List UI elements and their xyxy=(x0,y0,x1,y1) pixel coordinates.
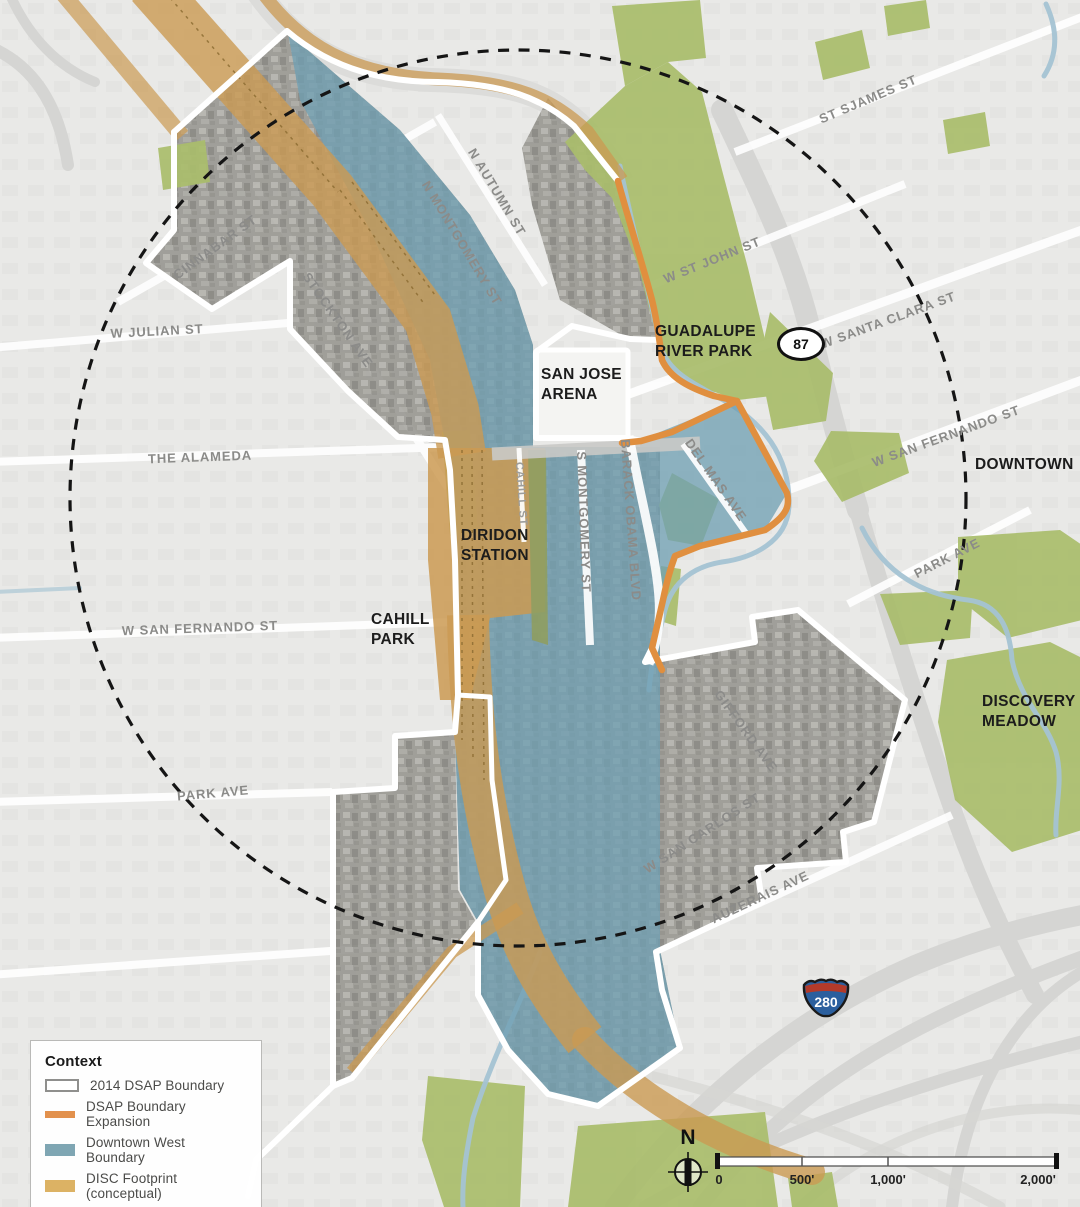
swatch-downtown-west xyxy=(45,1144,75,1156)
place-label-diridon-station: DIRIDON STATION xyxy=(461,526,529,566)
scale-tick-0: 0 xyxy=(715,1172,722,1187)
swatch-dsap-expansion xyxy=(45,1111,75,1118)
legend-label: 2014 DSAP Boundary xyxy=(90,1078,224,1093)
interstate-280-shield: 280 xyxy=(801,976,851,1022)
scale-tick-1000: 1,000' xyxy=(870,1172,906,1187)
legend-item-dsap-expansion: DSAP Boundary Expansion xyxy=(45,1099,247,1129)
legend-item-disc-footprint: DISC Footprint (conceptual) xyxy=(45,1171,247,1201)
place-label-san-jose-arena: SAN JOSE ARENA xyxy=(541,365,622,405)
place-label-downtown: DOWNTOWN xyxy=(975,455,1074,475)
place-label-guadalupe-river-park: GUADALUPE RIVER PARK xyxy=(655,322,756,362)
place-label-cahill-park: CAHILL PARK xyxy=(371,610,430,650)
place-label-discovery-meadow: DISCOVERY MEADOW xyxy=(982,692,1076,732)
legend-title: Context xyxy=(45,1053,247,1070)
north-arrow-label: N xyxy=(680,1126,695,1150)
scale-tick-500: 500' xyxy=(790,1172,815,1187)
map-canvas xyxy=(0,0,1080,1207)
legend-label: DISC Footprint (conceptual) xyxy=(86,1171,247,1201)
legend-label: DSAP Boundary Expansion xyxy=(86,1099,247,1129)
route-87-number: 87 xyxy=(793,336,809,352)
legend-label: Downtown West Boundary xyxy=(86,1135,247,1165)
interstate-280-number: 280 xyxy=(814,994,838,1010)
swatch-disc-footprint xyxy=(45,1180,75,1192)
route-87-shield: 87 xyxy=(777,327,825,361)
swatch-2014-dsap-boundary xyxy=(45,1079,79,1092)
legend-item-2014-dsap-boundary: 2014 DSAP Boundary xyxy=(45,1078,247,1093)
diridon-context-map: CINNABAR ST STOCKTON AVE W JULIAN ST THE… xyxy=(0,0,1080,1207)
legend-item-downtown-west: Downtown West Boundary xyxy=(45,1135,247,1165)
scale-tick-2000: 2,000' xyxy=(1020,1172,1056,1187)
legend-panel: Context 2014 DSAP Boundary DSAP Boundary… xyxy=(30,1040,262,1207)
